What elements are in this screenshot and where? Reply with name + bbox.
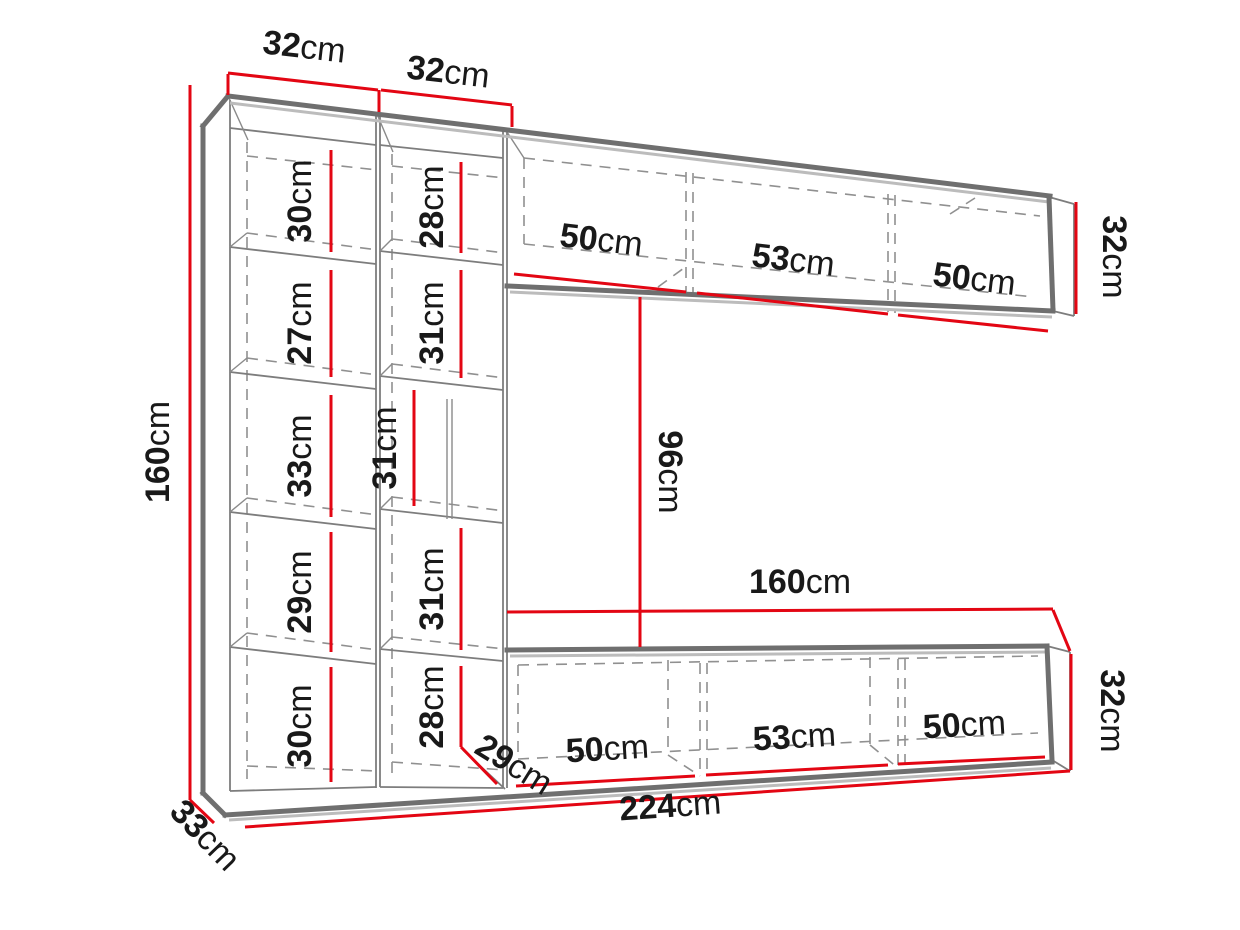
dim-label-gap-height: 96cm [651,430,689,513]
dim-label-top-height: 32cm [1095,215,1133,298]
dim-label-total-height: 160cm [139,401,177,503]
dim-label-top-sec3: 50cm [931,255,1018,303]
diagram-canvas: 160cm 32cm 32cm 30cm 27cm 33cm 29cm 30cm… [0,0,1240,930]
dim-label-col2-comp5: 28cm [413,665,451,748]
dim-label-col2-comp1: 28cm [413,165,451,248]
dim-label-col1-comp4: 29cm [281,550,319,633]
dim-label-col1-comp2: 27cm [281,281,319,364]
dim-label-total-width: 224cm [618,784,722,829]
dim-label-col2-comp4: 31cm [413,547,451,630]
dim-label-bottom-length: 160cm [749,563,851,601]
wall-unit-dimension-diagram: 160cm 32cm 32cm 30cm 27cm 33cm 29cm 30cm… [0,0,1240,930]
dim-label-side-depth: 33cm [162,792,247,878]
dim-label-col1-width: 32cm [261,23,348,70]
dim-label-bot-height: 32cm [1093,669,1131,752]
dim-label-top-sec2: 53cm [750,236,837,284]
dim-label-top-sec1: 50cm [558,216,645,264]
dim-label-col2-width: 32cm [405,48,492,95]
dim-label-bot-sec3: 50cm [922,704,1007,747]
dim-label-bot-sec2: 53cm [752,716,837,759]
dim-label-col2-comp2: 31cm [413,281,451,364]
dim-label-col1-comp5: 30cm [281,684,319,767]
dim-label-bot-sec1: 50cm [565,728,650,771]
dim-label-col1-comp3: 33cm [281,414,319,497]
dim-label-col2-comp3: 31cm [366,406,404,489]
dim-label-bot-depth: 29cm [469,727,560,803]
dim-label-col1-comp1: 30cm [281,159,319,242]
